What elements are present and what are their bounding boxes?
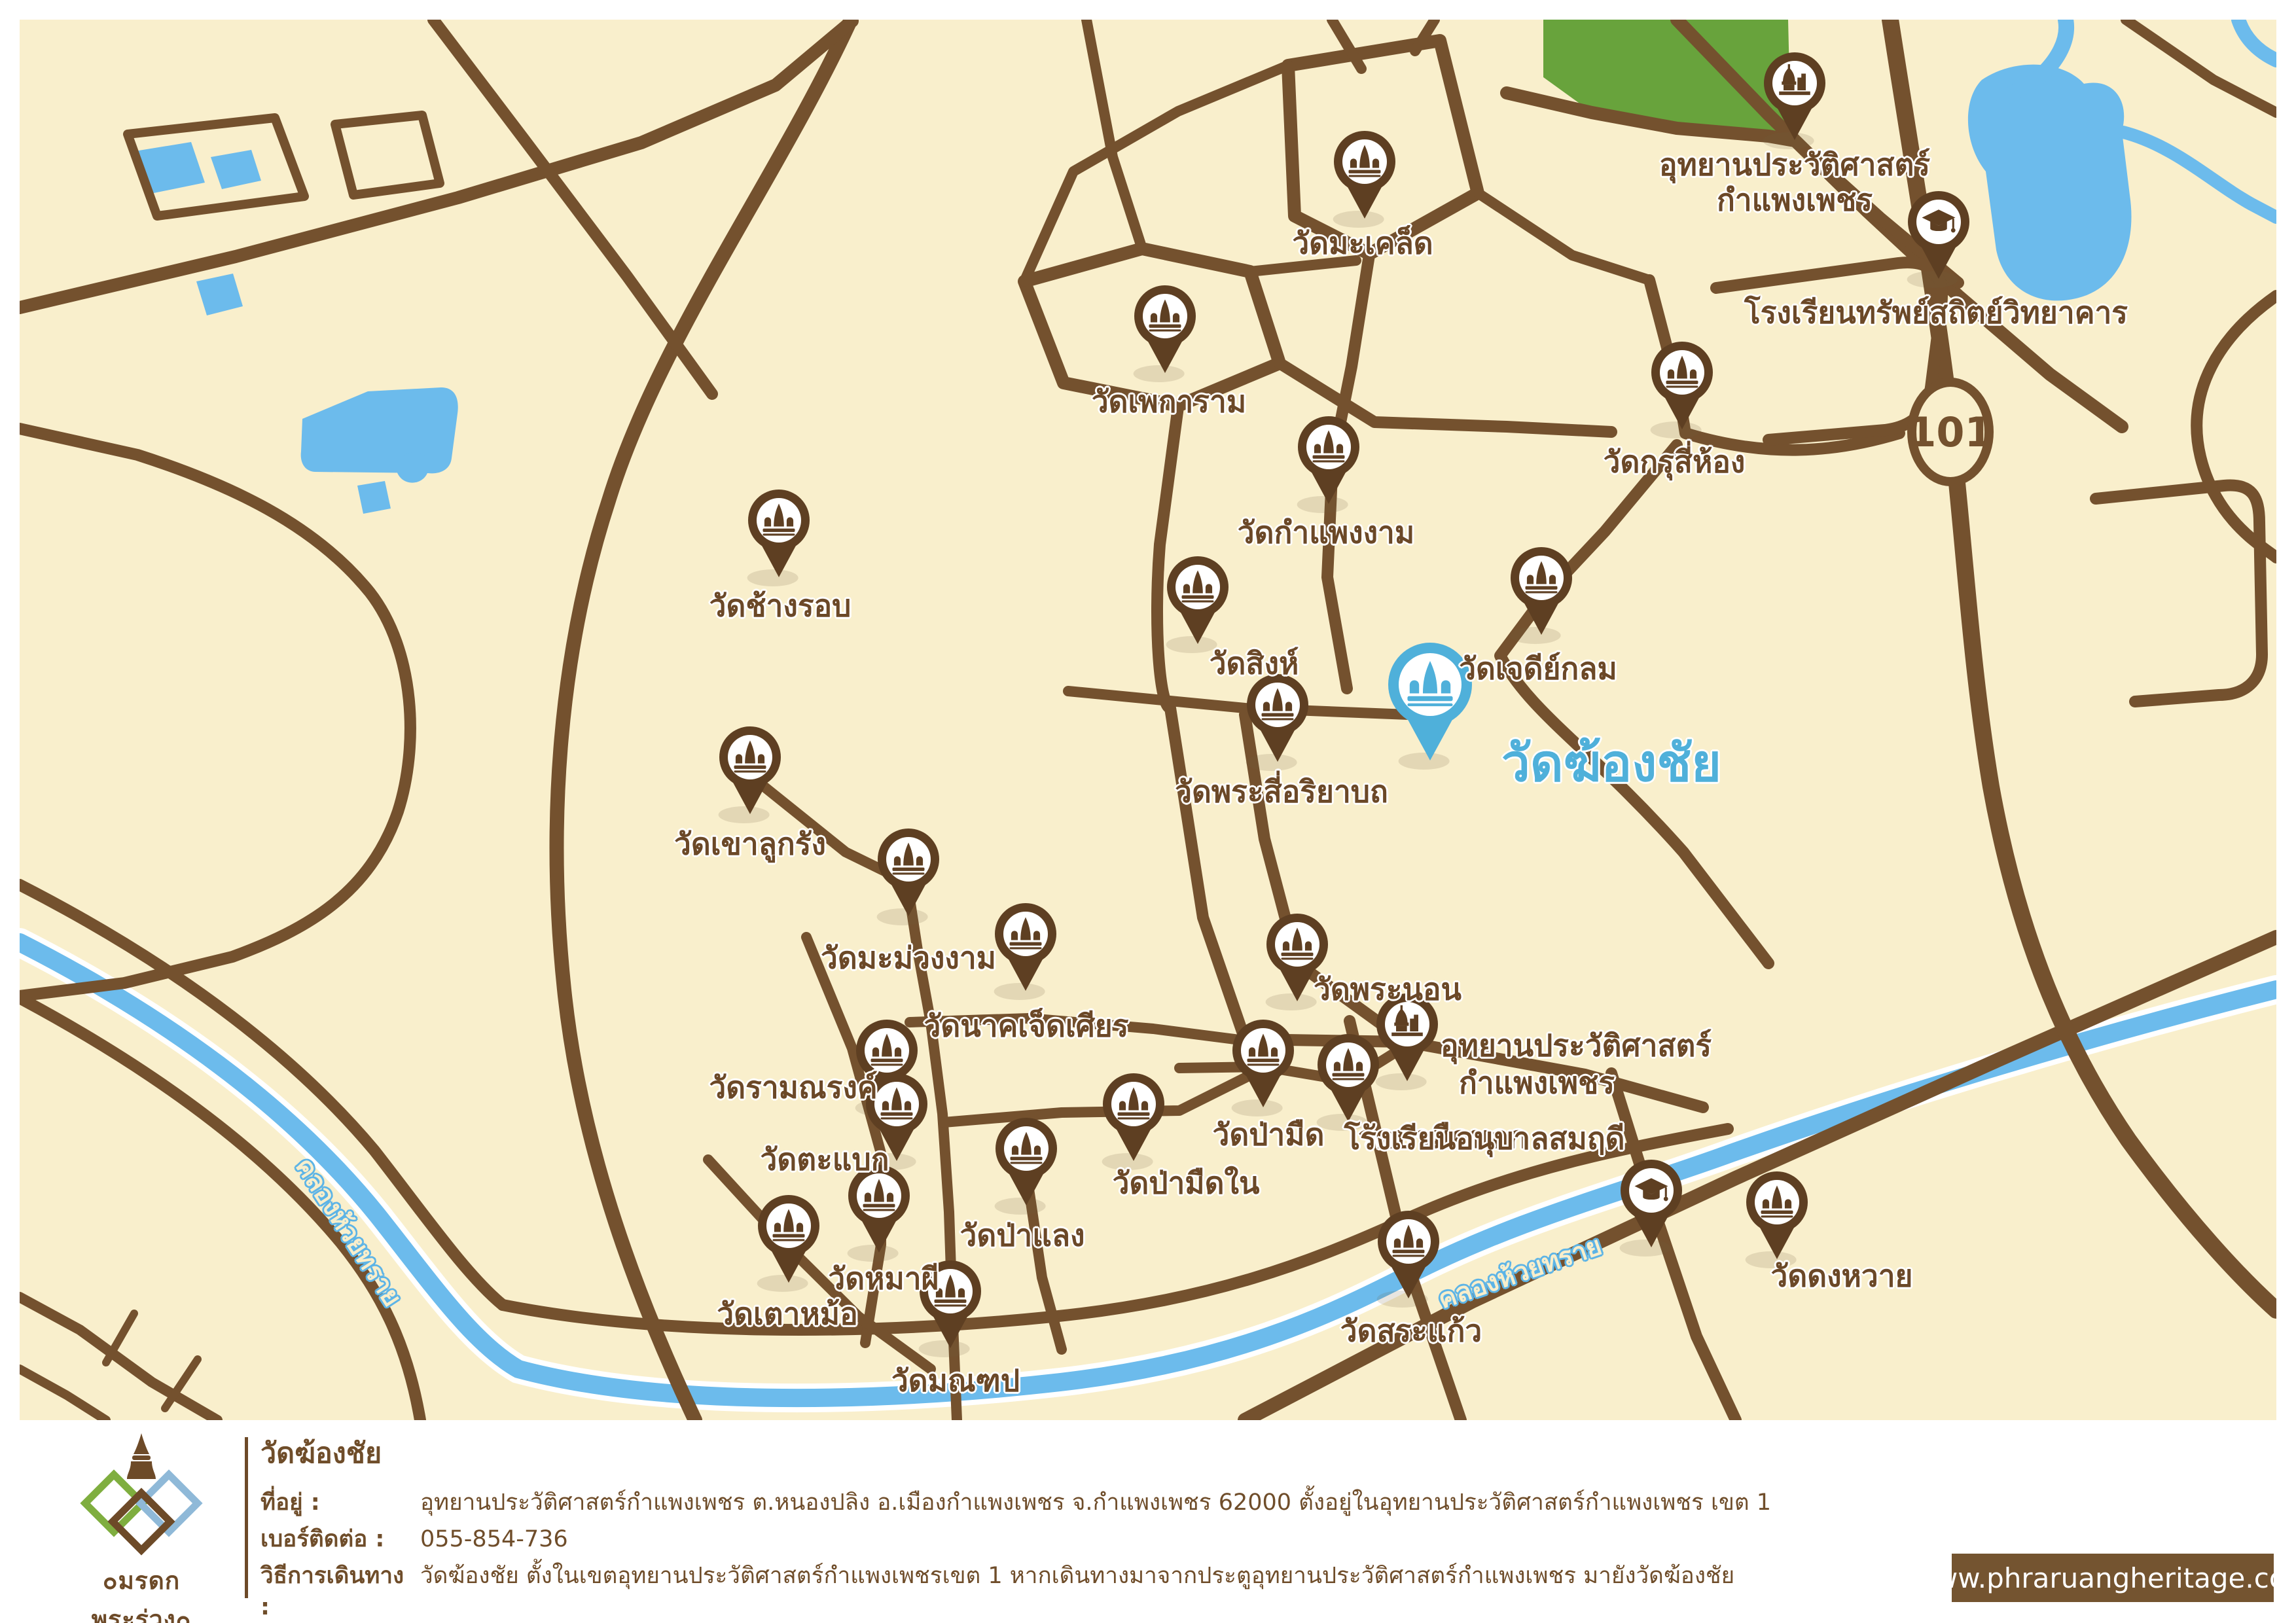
temple-icon (728, 735, 772, 779)
label-wat-kamphaeng-ngam: วัดกำแพงงาม (1238, 509, 1414, 557)
label-wat-monthop: วัดมณฑป (891, 1357, 1020, 1405)
pin-tail (1116, 1128, 1151, 1161)
pin-head (1511, 547, 1572, 609)
label-wat-mamuang-ngam: วัดมะม่วงงาม (821, 935, 996, 982)
label-wat-pa-muet-nai: วัดป่ามืดใน (1113, 1160, 1260, 1207)
temple-icon (1342, 139, 1387, 184)
pin-tail (1347, 186, 1382, 219)
map-canvas[interactable]: 101 วัดมะเคล็ดอุทยานประวัติศาสตร์กำแพงเพ… (0, 0, 2296, 1623)
pin-wat-pa-muet[interactable] (1232, 1020, 1294, 1107)
pin-wat-nak-chet-sian[interactable] (995, 903, 1056, 991)
pin-wat-chang-rop[interactable] (748, 490, 810, 577)
pin-head (1764, 52, 1825, 114)
temple-title: วัดฆ้องชัย (260, 1431, 1771, 1475)
label-park-center-line2: กำแพงเพชร (1459, 1060, 1615, 1107)
pin-wat-khao-luk-rang[interactable] (719, 726, 781, 814)
pin-tail (1246, 1075, 1281, 1107)
phone-label: เบอร์ติดต่อ : (260, 1524, 420, 1555)
temple-icon (757, 498, 801, 543)
pin-tail (761, 544, 797, 577)
label-wat-phra-si-ariyabot: วัดพระสี่อริยาบถ (1175, 768, 1388, 816)
pin-tail (1524, 602, 1559, 635)
temple-icon (1111, 1082, 1156, 1126)
pin-wat-pa-laeng[interactable] (996, 1118, 1057, 1205)
pin-tail (861, 1220, 897, 1253)
pin-tail (1008, 958, 1043, 991)
phraruang-logo: ๐มรดกพระร่วง๐ (56, 1432, 226, 1623)
label-wat-sing: วัดสิงห์ (1210, 640, 1299, 688)
address-value: อุทยานประวัติศาสตร์กำแพงเพชร ต.หนองปลิง … (420, 1487, 1771, 1518)
label-wat-chang-rop: วัดช้างรอบ (709, 582, 852, 630)
pin-head (1621, 1160, 1682, 1221)
pin-head (1134, 285, 1196, 347)
temple-icon (1386, 1219, 1431, 1264)
pin-wat-mamuang-ngam[interactable] (878, 829, 939, 916)
pin-wat-chedi-klom[interactable] (1511, 547, 1572, 635)
label-wat-phekaram: วัดเพการาม (1092, 378, 1246, 426)
pin-head (1318, 1034, 1379, 1096)
pin-tail (1311, 471, 1346, 504)
temple-icon (1326, 1043, 1371, 1087)
pin-tail (1407, 717, 1454, 760)
temple-icon (1399, 653, 1462, 716)
pin-tail (1147, 340, 1183, 373)
pin-wat-pa-muet-nok[interactable] (1318, 1034, 1379, 1122)
temple-icon (1519, 556, 1564, 600)
label-park-top-line2: กำแพงเพชร (1717, 177, 1873, 224)
temple-icon (1175, 565, 1220, 609)
label-wat-tabaek: วัดตะแบก (761, 1136, 889, 1184)
pin-wat-makhlet[interactable] (1334, 131, 1395, 219)
pin-head (1651, 342, 1713, 403)
directions-value-line1: วัดฆ้องชัย ตั้งในเขตอุทยานประวัติศาสตร์ก… (420, 1560, 1734, 1623)
website-url: www.phraruangheritage.com (1913, 1562, 2296, 1594)
pin-wat-sa-kaeo[interactable] (1378, 1211, 1439, 1298)
label-wat-kru-si-hong: วัดกรุสี่ห้อง (1604, 438, 1746, 486)
label-school-anuban: โรงเรียนอนุบาลสมฤดี (1344, 1115, 1624, 1163)
highway-101-label: 101 (1908, 408, 1992, 456)
directions-label: วิธีการเดินทาง : (260, 1560, 420, 1623)
pin-tail (1280, 969, 1315, 1001)
address-row: ที่อยู่ : อุทยานประวัติศาสตร์กำแพงเพชร ต… (260, 1487, 1771, 1518)
pin-head (1908, 191, 1969, 253)
school-icon (1629, 1168, 1674, 1213)
phone-row: เบอร์ติดต่อ : 055-854-736 (260, 1524, 1771, 1555)
pin-head (1746, 1171, 1808, 1233)
pin-tail (771, 1250, 806, 1283)
pin-head (878, 829, 939, 890)
pin-tail (1180, 611, 1215, 644)
temple-icon (874, 1082, 919, 1126)
pin-head (1334, 131, 1395, 192)
pin-wat-dong-wai[interactable] (1746, 1171, 1808, 1259)
pin-head (1103, 1073, 1164, 1135)
temple-icon (1004, 1126, 1049, 1171)
pin-tail (1921, 246, 1956, 279)
temple-icon (886, 837, 931, 882)
pin-tail (1664, 397, 1700, 429)
phraruang-logo-icon (63, 1432, 220, 1556)
pin-school-anuban[interactable] (1621, 1160, 1682, 1247)
label-wat-pa-muet: วัดป่ามืด (1213, 1111, 1325, 1159)
park-icon (1772, 61, 1817, 105)
pin-wat-tao-mo[interactable] (758, 1195, 819, 1283)
label-school-sapsathit: โรงเรียนทรัพย์สถิตย์วิทยาคาร (1744, 289, 2128, 337)
temple-icon (766, 1204, 811, 1248)
label-wat-dong-wai: วัดดงหวาย (1771, 1253, 1913, 1300)
pin-park-top[interactable] (1764, 52, 1825, 140)
pin-head (758, 1195, 819, 1257)
label-wat-chedi-klom: วัดเจดีย์กลม (1459, 645, 1617, 693)
info-panel: ๐มรดกพระร่วง๐ วัดฆ้องชัย ที่อยู่ : อุทยา… (0, 1420, 2296, 1623)
panel-divider (245, 1437, 248, 1598)
page: 101 วัดมะเคล็ดอุทยานประวัติศาสตร์กำแพงเพ… (0, 0, 2296, 1623)
pin-head (1378, 1211, 1439, 1272)
pin-head (1232, 1020, 1294, 1081)
pin-tail (1777, 107, 1812, 140)
pin-tail (1391, 1266, 1426, 1298)
label-wat-tao-mo: วัดเตาหม้อ (717, 1291, 857, 1338)
temple-icon (1660, 350, 1704, 395)
label-wat-khong-chai: วัดฆ้องชัย (1501, 722, 1721, 804)
label-wat-pa-laeng: วัดป่าแลง (960, 1212, 1085, 1260)
temple-icon (1003, 912, 1048, 956)
temple-icon (1255, 683, 1300, 727)
pin-head (748, 490, 810, 551)
pin-tail (1390, 1048, 1425, 1081)
pin-head (1167, 556, 1229, 618)
phone-value: 055-854-736 (420, 1524, 568, 1555)
pin-tail (891, 883, 926, 916)
pin-wat-kru-si-hong[interactable] (1651, 342, 1713, 429)
pin-head (1298, 416, 1359, 478)
temple-icon (1755, 1180, 1799, 1224)
temple-info: วัดฆ้องชัย ที่อยู่ : อุทยานประวัติศาสตร์… (260, 1431, 1771, 1623)
pin-head (996, 1118, 1057, 1179)
temple-icon (1241, 1028, 1285, 1073)
pin-wat-pa-muet-nai[interactable] (1103, 1073, 1164, 1161)
label-wat-makhlet: วัดมะเคล็ด (1292, 220, 1433, 268)
phraruang-logo-text: ๐มรดกพระร่วง๐ (56, 1561, 226, 1623)
label-wat-nak-chet-sian: วัดนาคเจ็ดเศียร (924, 1003, 1129, 1050)
directions-row: วิธีการเดินทาง : วัดฆ้องชัย ตั้งในเขตอุท… (260, 1560, 1771, 1623)
temple-icon (1275, 922, 1319, 967)
pin-wat-kamphaeng-ngam[interactable] (1298, 416, 1359, 504)
highway-101-badge: 101 (1907, 378, 1994, 486)
pin-wat-sing[interactable] (1167, 556, 1229, 644)
label-wat-khao-luk-rang: วัดเขาลูกรัง (674, 821, 826, 868)
pin-tail (1009, 1173, 1044, 1205)
label-wat-phra-non: วัดพระนอน (1314, 966, 1462, 1014)
pin-tail (732, 781, 768, 814)
website-link[interactable]: www.phraruangheritage.com (1952, 1554, 2274, 1602)
pin-head (995, 903, 1056, 965)
temple-icon (1143, 294, 1187, 338)
pin-tail (1634, 1215, 1669, 1247)
address-label: ที่อยู่ : (260, 1487, 420, 1518)
label-wat-ram-narong: วัดรามณรงค์ (709, 1064, 877, 1112)
school-icon (1916, 200, 1961, 244)
pin-tail (1260, 729, 1295, 762)
pin-head (719, 726, 781, 788)
pin-school-sapsathit[interactable] (1908, 191, 1969, 279)
pin-wat-phekaram[interactable] (1134, 285, 1196, 373)
pin-tail (933, 1315, 968, 1348)
temple-icon (1306, 425, 1351, 469)
